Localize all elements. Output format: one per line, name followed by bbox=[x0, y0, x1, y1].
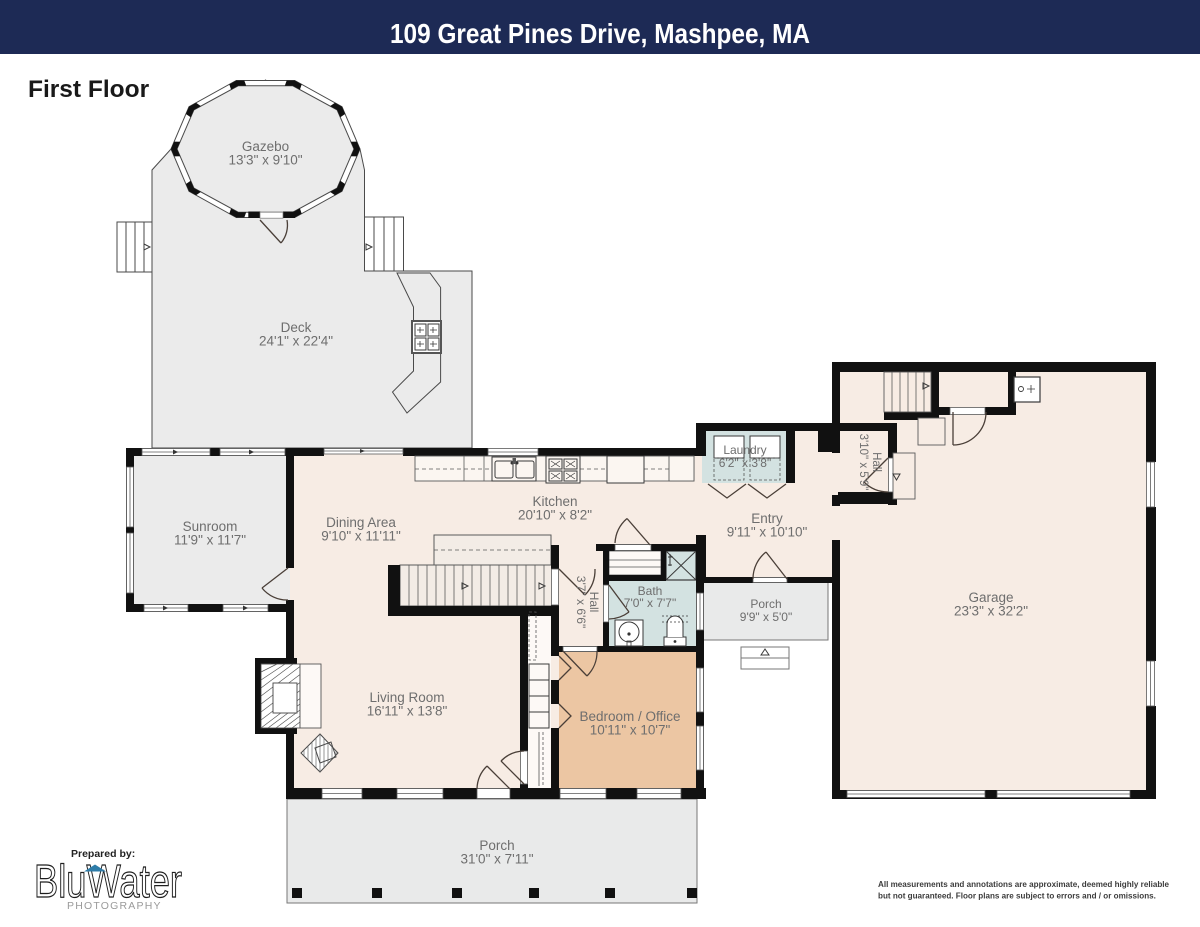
svg-text:109 Great Pines Drive, Mashpee: 109 Great Pines Drive, Mashpee, MA bbox=[390, 18, 810, 49]
svg-text:9'10" x 11'11": 9'10" x 11'11" bbox=[321, 529, 401, 544]
svg-text:13'3" x 9'10": 13'3" x 9'10" bbox=[228, 153, 302, 168]
svg-text:PHOTOGRAPHY: PHOTOGRAPHY bbox=[67, 900, 162, 912]
svg-text:20'10" x 8'2": 20'10" x 8'2" bbox=[518, 508, 592, 523]
svg-text:All measurements and annotatio: All measurements and annotations are app… bbox=[878, 880, 1170, 889]
svg-text:but not guaranteed. Floor plan: but not guaranteed. Floor plans are subj… bbox=[878, 892, 1156, 901]
svg-text:6'2" x 3'8": 6'2" x 3'8" bbox=[719, 456, 771, 470]
svg-text:10'11" x 10'7": 10'11" x 10'7" bbox=[590, 723, 671, 738]
svg-text:Hall: Hall bbox=[587, 592, 601, 613]
svg-text:Laundry: Laundry bbox=[723, 443, 766, 457]
svg-text:9'11" x 10'10": 9'11" x 10'10" bbox=[727, 525, 808, 540]
svg-text:Hall: Hall bbox=[870, 452, 882, 472]
svg-text:3'7" x 6'6": 3'7" x 6'6" bbox=[574, 576, 588, 628]
svg-text:11'9" x 11'7": 11'9" x 11'7" bbox=[174, 533, 246, 548]
svg-text:24'1" x 22'4": 24'1" x 22'4" bbox=[259, 334, 333, 349]
svg-text:3'10" x 5'9": 3'10" x 5'9" bbox=[857, 434, 869, 491]
svg-text:31'0" x 7'11": 31'0" x 7'11" bbox=[460, 852, 533, 867]
svg-text:9'9" x 5'0": 9'9" x 5'0" bbox=[740, 610, 792, 624]
svg-text:16'11" x 13'8": 16'11" x 13'8" bbox=[367, 704, 448, 719]
svg-text:23'3" x 32'2": 23'3" x 32'2" bbox=[954, 604, 1028, 619]
svg-text:7'0" x 7'7": 7'0" x 7'7" bbox=[624, 596, 676, 610]
svg-text:Porch: Porch bbox=[750, 597, 781, 611]
svg-text:First Floor: First Floor bbox=[28, 76, 150, 103]
